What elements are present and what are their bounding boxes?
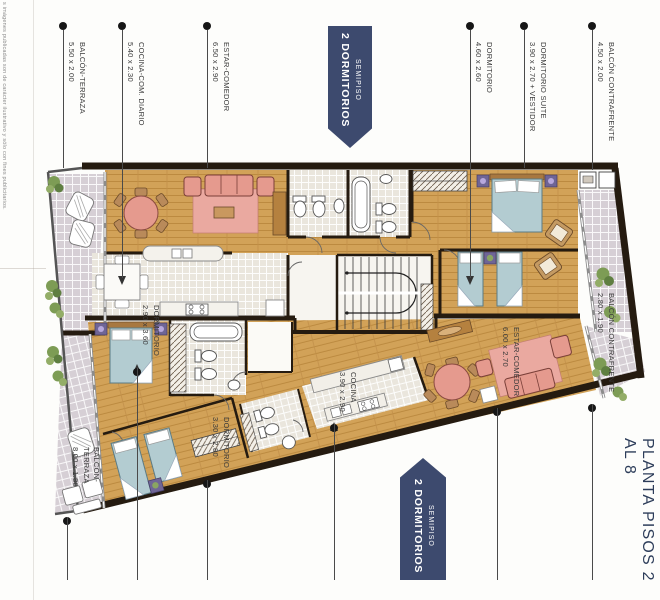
rear-closets (580, 172, 615, 188)
callout-dot (203, 22, 211, 30)
callout-line (592, 404, 593, 580)
scan-crease-vertical (33, 0, 34, 600)
banner-semipiso-top: SEMIPISO 2 DORMITORIOS (328, 26, 372, 148)
callout-line (334, 424, 335, 580)
callout-line (470, 30, 471, 278)
callout-dot (118, 22, 126, 30)
callout-line (122, 30, 123, 278)
banner-semipiso-bottom: SEMIPISO 2 DORMITORIOS (400, 458, 446, 580)
callout-line (137, 368, 138, 580)
callout-line (524, 30, 525, 168)
fridge (266, 300, 284, 316)
floorplan-page: s imágenes publicadas son de carácter il… (0, 0, 660, 600)
page-title: PLANTA PISOS 2 AL 8 (620, 438, 656, 600)
disclaimer-text: s imágenes publicadas son de carácter il… (1, 2, 7, 252)
callout-line (592, 30, 593, 170)
callout-line (67, 517, 68, 580)
vestidor-closet (413, 171, 467, 191)
callout-line (207, 30, 208, 168)
callout-line (207, 480, 208, 580)
callout-line (63, 30, 64, 168)
callout-line (497, 408, 498, 580)
callout-dot (520, 22, 528, 30)
callout-dot (466, 22, 474, 30)
callout-dot (59, 22, 67, 30)
callout-dot (588, 22, 596, 30)
kitchen-island (143, 246, 223, 261)
closet-room-bottom (248, 322, 292, 372)
elevator (421, 284, 433, 330)
tv-cabinet (273, 192, 286, 235)
scan-crease-horizontal (0, 268, 46, 269)
